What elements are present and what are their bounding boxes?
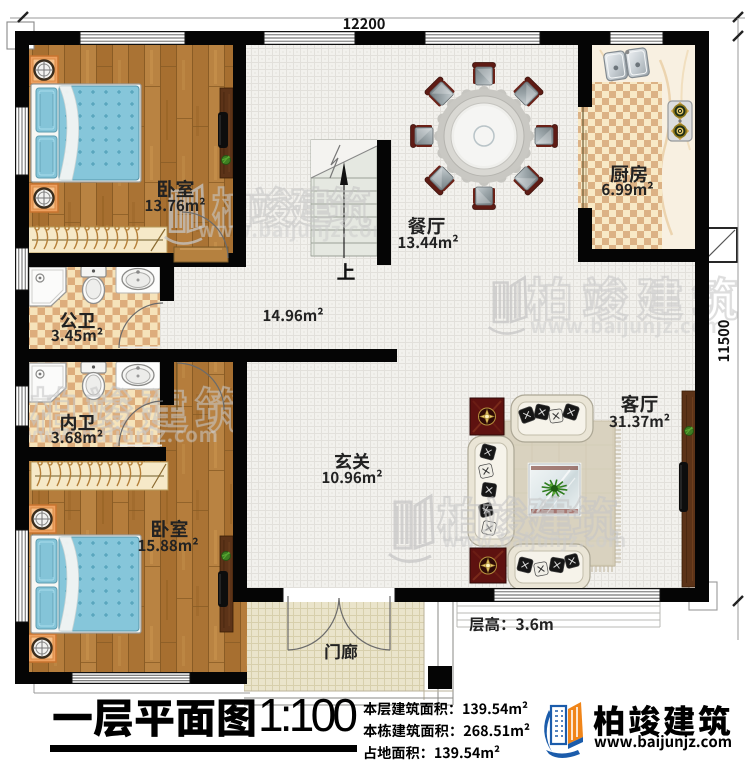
svg-text:1:100: 1:100 <box>258 689 358 741</box>
